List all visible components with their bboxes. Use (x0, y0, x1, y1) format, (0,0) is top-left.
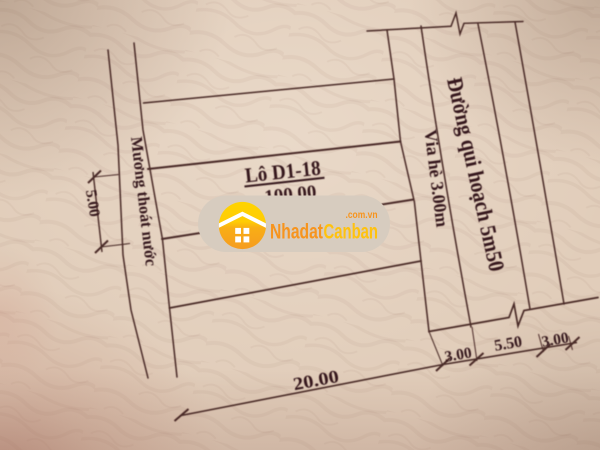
svg-text:.com.vn: .com.vn (346, 210, 378, 221)
svg-text:Canban: Canban (324, 221, 379, 244)
svg-text:Nhadat: Nhadat (270, 221, 323, 244)
